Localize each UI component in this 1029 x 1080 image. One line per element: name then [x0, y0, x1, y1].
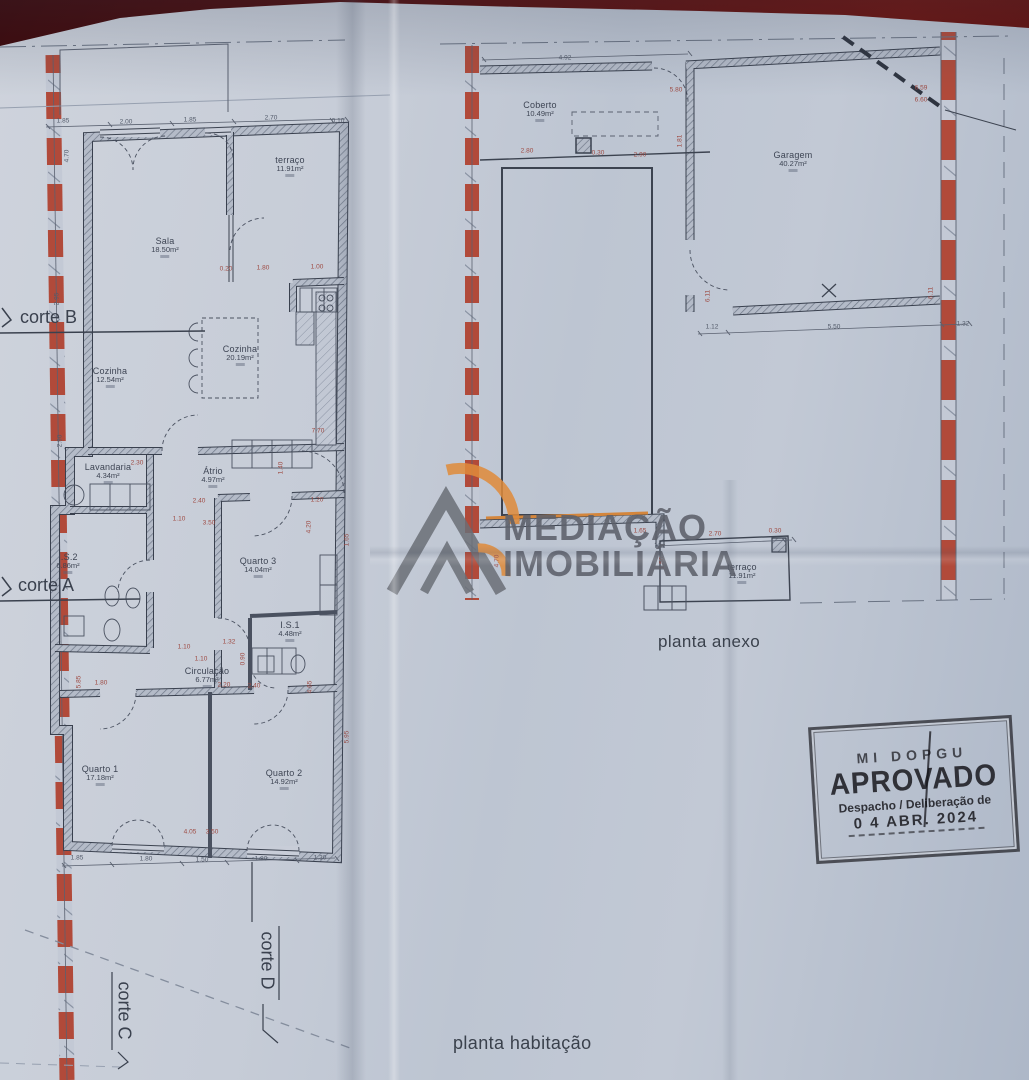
roof-outline [60, 44, 228, 115]
annex-walls [480, 37, 1016, 610]
fixtures [64, 288, 337, 674]
floor-plan-drawing [0, 0, 1029, 1080]
agency-logo [392, 468, 514, 592]
photo-of-floor-plan: terraço11.91m²Sala18.50m²Cozinha12.54m²C… [0, 0, 1029, 1080]
house-walls [55, 126, 344, 858]
